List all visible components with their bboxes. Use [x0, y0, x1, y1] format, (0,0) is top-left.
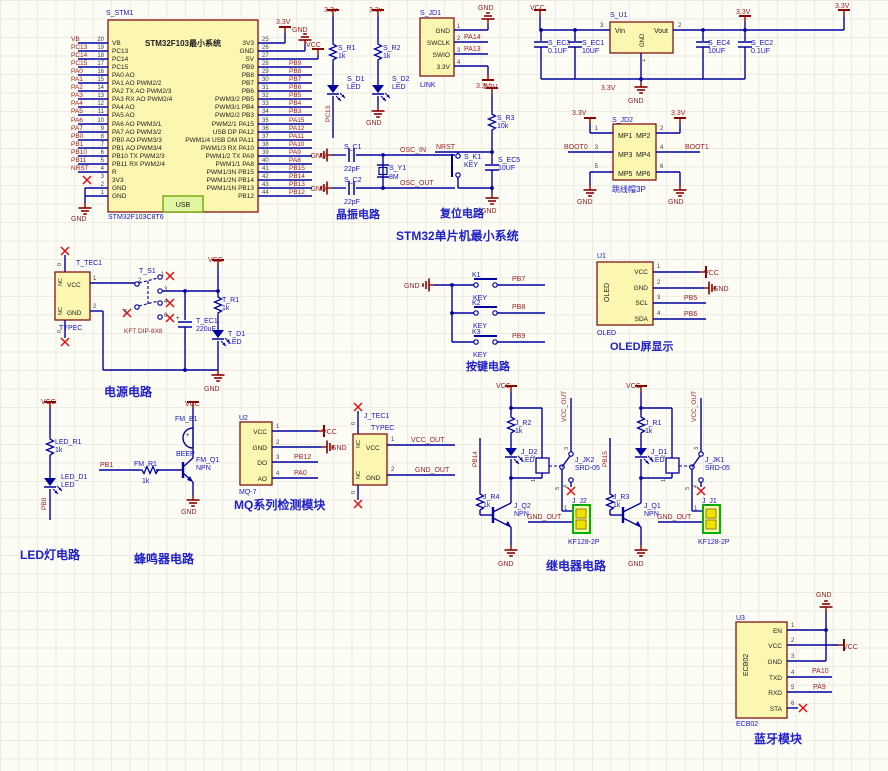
pin-name: GND — [366, 475, 381, 482]
section-caption[interactable]: 继电器电路 — [546, 558, 607, 573]
power-symbol[interactable] — [482, 74, 494, 80]
net-label[interactable]: 3.3V — [572, 110, 587, 117]
net-label[interactable]: PA9 — [813, 684, 826, 691]
designator-label[interactable]: S_EC4 — [708, 40, 730, 47]
pin-name: PB8 — [242, 72, 255, 79]
net-label[interactable]: PA6 — [71, 117, 83, 124]
pin-number: 28 — [262, 61, 269, 67]
net-label[interactable]: PA2 — [71, 84, 83, 91]
designator-label[interactable]: J_J1 — [702, 498, 717, 505]
net-label[interactable]: VCC — [704, 270, 719, 277]
net-label[interactable]: 3.3v — [369, 7, 383, 14]
relay-coil-box[interactable] — [536, 458, 549, 473]
pin-number: 5 — [101, 158, 105, 164]
section-caption[interactable]: 电源电路 — [104, 384, 153, 399]
designator-label[interactable]: MQ-7 — [239, 489, 257, 496]
net-label[interactable]: GND — [628, 98, 644, 105]
net-label[interactable]: PB3 — [289, 108, 302, 115]
designator-label[interactable]: J_TEC1 — [364, 413, 389, 420]
designator-label[interactable]: S_STM1 — [106, 10, 133, 17]
pushbutton[interactable] — [452, 154, 460, 177]
pin-number: 1 — [161, 272, 165, 278]
designator-label[interactable]: 10UF — [582, 48, 599, 55]
designator-label[interactable]: SRD-05 — [575, 465, 600, 472]
designator-label[interactable]: J_R1 — [645, 420, 661, 427]
net-label[interactable]: PB13 — [289, 181, 305, 188]
resistor[interactable] — [47, 437, 54, 455]
designator-label[interactable]: J_JK2 — [575, 457, 595, 464]
section-caption[interactable]: LED灯电路 — [20, 547, 81, 562]
pin-name: PB1 AO PWM3/4 — [112, 145, 162, 152]
resistor[interactable] — [489, 112, 496, 132]
designator-label[interactable]: 1k — [338, 53, 346, 60]
capacitor[interactable] — [178, 322, 192, 327]
npn-transistor[interactable] — [623, 503, 641, 527]
pin-number: 2 — [531, 455, 537, 458]
designator-label[interactable]: KEY — [464, 162, 478, 169]
designator-label[interactable]: T_D1 — [228, 331, 245, 338]
net-label[interactable]: VCC — [306, 42, 321, 49]
gnd-symbol[interactable] — [674, 185, 687, 196]
pin-name: USB DP PA12 — [213, 129, 255, 136]
designator-label[interactable]: LED — [347, 84, 361, 91]
net-label[interactable]: PB0 — [71, 133, 84, 140]
net-label[interactable]: PB12 — [289, 189, 305, 196]
no-connect-marker — [166, 272, 174, 280]
net-label[interactable]: PB5 — [684, 295, 697, 302]
pin-name: PA6 AO PWM3/1 — [112, 121, 162, 128]
net-label[interactable]: PB1 — [100, 462, 113, 469]
net-label[interactable]: GND — [668, 199, 684, 206]
power-symbol[interactable] — [279, 27, 291, 33]
net-label[interactable]: GND_OUT — [657, 514, 692, 521]
designator-label[interactable]: LED — [392, 84, 406, 91]
gnd-symbol[interactable] — [635, 82, 648, 93]
designator-label[interactable]: LED — [61, 482, 75, 489]
designator-label[interactable]: S_Y1 — [389, 165, 406, 172]
gnd-symbol[interactable] — [482, 13, 495, 24]
pin-number: 10 — [97, 118, 104, 124]
net-label[interactable]: VB — [71, 36, 80, 43]
gnd-symbol[interactable] — [423, 279, 434, 292]
section-caption[interactable]: 复位电路 — [439, 206, 485, 220]
designator-label[interactable]: 1k — [383, 53, 391, 60]
section-caption[interactable]: 蓝牙模块 — [754, 731, 803, 746]
net-label[interactable]: GND_OUT — [415, 467, 450, 474]
designator-label[interactable]: 10UF — [708, 48, 725, 55]
designator-label[interactable]: 8M — [389, 174, 399, 181]
designator-label[interactable]: S_C2 — [344, 177, 362, 184]
net-label[interactable]: PA0 — [294, 470, 307, 477]
net-label[interactable]: GND — [478, 5, 494, 12]
designator-label[interactable]: S_R1 — [338, 45, 356, 52]
pin-name: NC — [58, 307, 64, 315]
net-label[interactable]: 3.3V — [671, 110, 686, 117]
gnd-symbol[interactable] — [212, 370, 225, 381]
power-symbol[interactable] — [584, 118, 596, 124]
designator-label[interactable]: J_R4 — [483, 494, 499, 501]
gnd-symbol[interactable] — [820, 601, 833, 612]
designator-label[interactable]: KF128-2P — [568, 539, 600, 546]
pin-name: NC — [356, 471, 362, 479]
net-label[interactable]: OSC_IN — [400, 147, 426, 154]
net-label[interactable]: PB6 — [684, 311, 697, 318]
net-label[interactable]: 3.3V — [276, 19, 291, 26]
net-label[interactable]: GND — [331, 445, 347, 452]
pin-number: 37 — [262, 134, 269, 140]
resistor[interactable] — [375, 42, 382, 62]
designator-label[interactable]: FM_B1 — [175, 416, 198, 423]
pin-number: 29 — [262, 69, 269, 75]
pin-name: VB — [112, 40, 121, 47]
pin-number: 2 — [391, 467, 395, 473]
designator-label[interactable]: S_K1 — [464, 154, 481, 161]
designator-label[interactable]: FM_Q1 — [196, 457, 219, 464]
designator-label[interactable]: S_EC3 — [548, 40, 570, 47]
pin-name: DO — [257, 460, 267, 467]
net-label[interactable]: PA5 — [71, 108, 83, 115]
net-label[interactable]: VCC — [322, 429, 337, 436]
net-label[interactable]: PB15 — [602, 451, 609, 467]
pushbutton[interactable] — [474, 279, 497, 287]
net-label[interactable]: VCC — [185, 401, 200, 408]
designator-label[interactable]: U2 — [239, 415, 248, 422]
net-label[interactable]: PB8 — [289, 68, 302, 75]
pin-number: 4 — [457, 60, 461, 66]
designator-label[interactable]: S_C1 — [344, 144, 362, 151]
designator-label[interactable]: K2 — [472, 300, 481, 307]
section-caption[interactable]: 蜂鸣器电路 — [134, 551, 195, 566]
net-label[interactable]: PB14 — [472, 451, 479, 467]
designator-label[interactable]: J_J2 — [572, 498, 587, 505]
resistor[interactable] — [330, 42, 337, 62]
pushbutton[interactable] — [474, 336, 497, 344]
pin-name: PWM1/1 PA8 — [215, 161, 254, 168]
designator-label[interactable]: 0.1UF — [751, 48, 770, 55]
wire[interactable] — [562, 456, 570, 467]
capacitor[interactable] — [485, 165, 499, 170]
designator-label[interactable]: 1k — [483, 502, 491, 509]
pin-name: ECB02 — [743, 654, 750, 676]
pushbutton[interactable] — [474, 307, 497, 315]
connector-pad — [576, 509, 586, 518]
net-label[interactable]: PB5 — [289, 92, 302, 99]
designator-label[interactable]: S_D1 — [347, 76, 365, 83]
pin-number: 36 — [262, 126, 269, 132]
net-label[interactable]: PA9 — [289, 149, 301, 156]
contact-circle — [699, 452, 703, 456]
section-caption[interactable]: OLED屏显示 — [610, 340, 674, 353]
net-label[interactable]: PA12 — [289, 125, 305, 132]
designator-label[interactable]: S_U1 — [610, 12, 628, 19]
net-label[interactable]: NRST — [71, 165, 89, 172]
pin-number: 38 — [262, 142, 269, 148]
net-label[interactable]: VCC_OUT — [691, 391, 698, 422]
net-label[interactable]: PC13 — [71, 44, 88, 51]
designator-label[interactable]: FM_R1 — [134, 461, 157, 468]
power-symbol[interactable] — [674, 118, 686, 124]
net-label[interactable]: PA4 — [71, 100, 83, 107]
net-label[interactable]: GND — [404, 283, 420, 290]
capacitor[interactable] — [738, 42, 752, 47]
designator-label[interactable]: LED_D1 — [61, 474, 88, 481]
power-symbol[interactable] — [838, 10, 850, 16]
pin-name: GND — [768, 659, 783, 666]
designator-label[interactable]: J_R3 — [613, 494, 629, 501]
pin-number: 6 — [101, 150, 105, 156]
net-label[interactable]: VCC — [208, 257, 223, 264]
net-label[interactable]: BOOT0 — [564, 144, 588, 151]
designator-label[interactable]: 10UF — [498, 165, 515, 172]
designator-label[interactable]: S_EC5 — [498, 157, 520, 164]
gnd-symbol[interactable] — [79, 203, 92, 214]
pin-number: 39 — [262, 150, 269, 156]
net-label[interactable]: PC15 — [71, 60, 88, 67]
designator-label[interactable]: LINK — [420, 82, 436, 89]
led[interactable] — [372, 85, 390, 101]
section-caption[interactable]: 晶振电路 — [336, 207, 381, 221]
designator-label[interactable]: STM32F103C8T6 — [108, 214, 164, 221]
pin-name: NC — [356, 440, 362, 448]
resistor[interactable] — [508, 415, 515, 435]
designator-label[interactable]: 1k — [613, 502, 621, 509]
net-label[interactable]: GND — [204, 386, 220, 393]
net-label[interactable]: PA8 — [289, 157, 301, 164]
designator-label[interactable]: SRD-05 — [705, 465, 730, 472]
capacitor[interactable] — [534, 42, 548, 47]
designator-label[interactable]: 22pF — [344, 166, 360, 173]
pin-number: 4 — [693, 485, 699, 488]
schematic-canvas[interactable]: S_C122pFS_C222pFS_Y18MOSC_INOSC_OUTGNDGN… — [0, 0, 888, 771]
net-label[interactable]: 3.3V — [835, 3, 850, 10]
resistor[interactable] — [638, 415, 645, 435]
net-label[interactable]: PA0 — [71, 68, 83, 75]
net-label[interactable]: GND — [292, 27, 308, 34]
gnd-symbol[interactable] — [486, 193, 499, 204]
designator-label[interactable]: NPN — [196, 465, 211, 472]
pin-name: GND — [112, 185, 127, 192]
net-label[interactable]: PA15 — [289, 117, 305, 124]
contact-circle — [135, 305, 139, 309]
designator-label[interactable]: S_JD1 — [420, 10, 441, 17]
net-label[interactable]: GND — [816, 592, 832, 599]
contact-circle — [158, 289, 162, 293]
net-label[interactable]: VCC — [530, 5, 545, 12]
gnd-symbol[interactable] — [505, 545, 518, 556]
designator-label[interactable]: 10k — [497, 123, 509, 130]
net-label[interactable]: PB7 — [289, 76, 302, 83]
net-label[interactable]: VCC — [843, 644, 858, 651]
designator-label[interactable]: K1 — [472, 272, 481, 279]
designator-label[interactable]: 22pF — [344, 199, 360, 206]
designator-label[interactable]: T_S1 — [139, 268, 156, 275]
net-label[interactable]: PB9 — [289, 60, 302, 67]
designator-label[interactable]: T_EC1 — [196, 318, 218, 325]
net-label[interactable]: GND — [71, 216, 87, 223]
no-connect-marker — [61, 247, 69, 255]
section-caption[interactable]: 按键电路 — [466, 359, 511, 373]
pin-name: PWM1/4 USB DM PA11 — [185, 137, 254, 144]
gnd-symbol[interactable] — [584, 185, 597, 196]
designator-label[interactable]: T_R1 — [222, 297, 239, 304]
pin-number: 15 — [97, 77, 104, 83]
pin-name: 5V — [246, 56, 255, 63]
section-caption[interactable]: MQ系列检测模块 — [234, 497, 326, 512]
net-label[interactable]: VCC_OUT — [561, 391, 568, 422]
designator-label[interactable]: S_R3 — [497, 115, 515, 122]
designator-label[interactable]: LED — [228, 339, 242, 346]
net-label[interactable]: GND — [181, 509, 197, 516]
designator-label[interactable]: S_R2 — [383, 45, 401, 52]
resistor[interactable] — [215, 295, 222, 315]
designator-label[interactable]: OLED — [597, 330, 616, 337]
net-label[interactable]: PA13 — [464, 46, 481, 53]
led[interactable] — [44, 478, 62, 494]
net-label[interactable]: GND — [310, 153, 326, 160]
npn-transistor[interactable] — [493, 503, 511, 527]
net-label[interactable]: VCC_OUT — [411, 437, 445, 444]
pin-number: 3 — [164, 287, 168, 293]
net-label[interactable]: PA10 — [812, 668, 829, 675]
net-label[interactable]: GND — [577, 199, 593, 206]
gnd-symbol[interactable] — [635, 545, 648, 556]
pin-number: 9 — [101, 126, 105, 132]
net-label[interactable]: PB15 — [289, 165, 305, 172]
section-caption[interactable]: STM32单片机最小系统 — [396, 228, 519, 243]
designator-label[interactable]: KEY — [473, 352, 487, 359]
net-label[interactable]: VCC — [626, 383, 641, 390]
npn-transistor[interactable] — [183, 458, 193, 482]
net-label[interactable]: GND — [366, 120, 382, 127]
designator-label[interactable]: LED_R1 — [55, 439, 82, 446]
pin-name: PB9 — [242, 64, 255, 71]
net-label[interactable]: GND — [628, 561, 644, 568]
net-label[interactable]: PB14 — [289, 173, 305, 180]
designator-label[interactable]: U3 — [736, 615, 745, 622]
power-symbol[interactable] — [312, 49, 324, 55]
gnd-symbol[interactable] — [372, 106, 385, 117]
net-label[interactable]: GND — [713, 286, 729, 293]
net-label[interactable]: GND_OUT — [527, 514, 562, 521]
designator-label[interactable]: U1 — [597, 253, 606, 260]
designator-label[interactable]: 1k — [222, 305, 230, 312]
designator-label[interactable]: 1k — [515, 428, 523, 435]
junction-dot — [216, 289, 220, 293]
designator-label[interactable]: 1k — [142, 478, 150, 485]
net-label[interactable]: PA10 — [289, 141, 305, 148]
designator-label[interactable]: 0.1UF — [548, 48, 567, 55]
designator-label[interactable]: J_JK1 — [705, 457, 725, 464]
pin-number: 1 — [641, 58, 647, 62]
net-label[interactable]: PB12 — [294, 454, 311, 461]
pin-name: GND — [436, 28, 451, 35]
net-label[interactable]: PA3 — [71, 92, 83, 99]
net-label[interactable]: PA1 — [71, 76, 83, 83]
net-label[interactable]: PB0 — [41, 497, 48, 510]
designator-label[interactable]: ECB02 — [736, 721, 758, 728]
designator-label[interactable]: 跳线帽3P — [612, 184, 646, 194]
pin-number: 3 — [101, 174, 105, 180]
designator-label[interactable]: S_EC2 — [751, 40, 773, 47]
net-label[interactable]: PB8 — [512, 304, 525, 311]
net-label[interactable]: PB6 — [289, 84, 302, 91]
pin-name: MP5 — [618, 171, 633, 178]
net-label[interactable]: KFT DIP-8X8 — [124, 328, 163, 335]
designator-label[interactable]: J_R2 — [515, 420, 531, 427]
designator-label[interactable]: 220uF — [196, 326, 216, 333]
pin-name: PWM3/1 PB4 — [215, 104, 254, 111]
net-label[interactable]: PA14 — [464, 34, 481, 41]
net-label[interactable]: PC13 — [325, 105, 332, 122]
net-label[interactable]: PB7 — [512, 276, 525, 283]
net-label[interactable]: PB10 — [71, 149, 87, 156]
designator-label[interactable]: J_Q2 — [514, 503, 531, 510]
designator-label[interactable]: BEEP — [176, 451, 195, 458]
designator-label[interactable]: S_JD2 — [612, 117, 633, 124]
designator-label[interactable]: TYPEC — [371, 425, 394, 432]
net-label[interactable]: GND — [310, 186, 326, 193]
designator-label[interactable]: 1k — [55, 447, 63, 454]
net-label[interactable]: GND — [498, 561, 514, 568]
wire[interactable] — [692, 456, 700, 467]
designator-label[interactable]: 1k — [645, 428, 653, 435]
net-label[interactable]: PC14 — [71, 52, 88, 59]
pin-number: 3 — [457, 48, 461, 54]
net-label[interactable]: PB9 — [512, 333, 525, 340]
net-label[interactable]: PA7 — [71, 125, 83, 132]
net-label[interactable]: PB11 — [71, 157, 87, 164]
gnd-symbol[interactable] — [187, 495, 200, 506]
net-label[interactable]: 3.3V — [601, 85, 616, 92]
net-label[interactable]: PA11 — [289, 133, 304, 140]
pin-name: VCC — [253, 429, 267, 436]
no-connect-marker — [83, 176, 91, 184]
net-label[interactable]: PB1 — [71, 141, 84, 148]
pin-number: 2 — [457, 36, 461, 42]
designator-label[interactable]: S_EC1 — [582, 40, 604, 47]
net-label[interactable]: 3.3V — [483, 84, 498, 91]
power-symbol[interactable] — [739, 16, 751, 22]
pin-number: 35 — [262, 118, 269, 124]
designator-label[interactable]: KF128-2P — [698, 539, 730, 546]
pin-number: 3 — [276, 455, 280, 461]
net-label[interactable]: NRST — [436, 144, 456, 151]
pin-number: 1 — [661, 479, 667, 482]
pin-name: PA1 AO PWM2/2 — [112, 80, 162, 87]
net-label[interactable]: OSC_OUT — [400, 180, 435, 187]
designator-label[interactable]: T_TEC1 — [76, 260, 102, 267]
pin-number: 40 — [262, 158, 269, 164]
pin-name: TXD — [769, 675, 782, 682]
pin-name: PB11 RX PWM2/4 — [112, 161, 165, 168]
net-label[interactable]: PB4 — [289, 100, 302, 107]
relay-coil-box[interactable] — [666, 458, 679, 473]
net-label[interactable]: 3.3v — [324, 7, 338, 14]
net-label[interactable]: VCC — [496, 383, 511, 390]
schematic-svg: S_C122pFS_C222pFS_Y18MOSC_INOSC_OUTGNDGN… — [0, 0, 888, 771]
led[interactable] — [327, 85, 345, 101]
pin-number: 8 — [101, 134, 105, 140]
pin-number: 2 — [791, 638, 795, 644]
designator-label[interactable]: J_Q1 — [644, 503, 661, 510]
pin-name: Vout — [654, 28, 668, 35]
designator-label[interactable]: K3 — [472, 329, 481, 336]
net-label[interactable]: VCC — [41, 399, 56, 406]
designator-label[interactable]: S_D2 — [392, 76, 410, 83]
net-label[interactable]: BOOT1 — [685, 144, 709, 151]
net-label[interactable]: 3.3V — [736, 9, 751, 16]
pin-name: STA — [770, 706, 783, 713]
